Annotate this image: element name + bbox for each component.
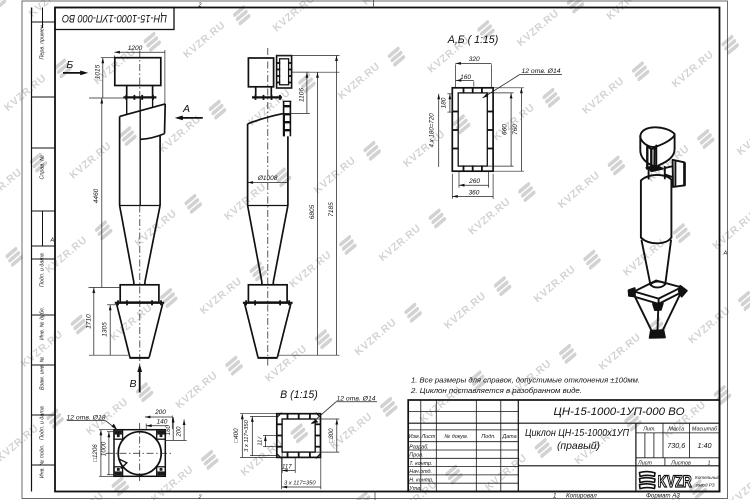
svg-text:Пров.: Пров.: [409, 453, 423, 459]
svg-text:2: 2: [198, 3, 202, 9]
svg-text:Ø1008: Ø1008: [257, 175, 278, 182]
svg-text:1106: 1106: [298, 88, 305, 102]
svg-text:6805: 6805: [309, 204, 316, 219]
svg-text:Лит.: Лит.: [642, 427, 656, 433]
svg-text:12 отв. Ø14: 12 отв. Ø14: [521, 68, 560, 75]
svg-text:Формат А3: Формат А3: [646, 493, 680, 500]
svg-text:160: 160: [166, 425, 172, 436]
svg-text:160: 160: [460, 74, 471, 81]
svg-text:3 х 117=350: 3 х 117=350: [284, 481, 316, 487]
svg-text:730,6: 730,6: [667, 441, 685, 450]
svg-text:200: 200: [177, 426, 183, 438]
svg-text:В: В: [129, 378, 136, 390]
svg-text:260: 260: [468, 178, 480, 185]
svg-text:Перв. примен.: Перв. примен.: [40, 24, 46, 60]
svg-text:Лист: Лист: [637, 460, 652, 466]
svg-text:Масса: Масса: [668, 427, 684, 433]
svg-text:1000: 1000: [100, 441, 107, 456]
svg-text:Т. контр.: Т. контр.: [409, 461, 432, 467]
svg-text:□1206: □1206: [92, 444, 99, 462]
svg-text:Разраб.: Разраб.: [409, 444, 429, 450]
svg-text:Лист: Лист: [421, 434, 436, 440]
svg-text:А: А: [182, 103, 190, 115]
svg-text:760: 760: [512, 124, 519, 135]
svg-text:А,Б ( 1:15): А,Б ( 1:15): [447, 34, 498, 46]
svg-text:А: А: [723, 251, 728, 257]
svg-text:завод РЗ: завод РЗ: [695, 483, 715, 488]
svg-text:Изм.: Изм.: [409, 434, 421, 440]
svg-text:Взам. инв. №: Взам. инв. №: [40, 356, 46, 390]
svg-text:Инв. № дубл.: Инв. № дубл.: [40, 307, 46, 340]
svg-text:2. Циклон поставляется в разоб: 2. Циклон поставляется в разобранном вид…: [410, 386, 582, 395]
svg-text:7185: 7185: [328, 202, 335, 217]
svg-text:Листов: Листов: [670, 460, 691, 466]
svg-text:1710: 1710: [85, 314, 92, 329]
svg-text:Нач.отд.: Нач.отд.: [409, 469, 432, 475]
svg-text:Циклон ЦН-15-1000х1УП: Циклон ЦН-15-1000х1УП: [525, 428, 629, 439]
svg-text:№ докум.: № докум.: [444, 434, 468, 440]
svg-text:660: 660: [502, 124, 509, 135]
svg-text:KVZR: KVZR: [658, 473, 692, 491]
svg-text:Утв.: Утв.: [408, 486, 421, 492]
svg-text:12 отв. Ø14: 12 отв. Ø14: [336, 395, 375, 402]
svg-text:320: 320: [469, 56, 480, 63]
svg-text:□300: □300: [328, 428, 335, 443]
svg-text:□400: □400: [233, 428, 240, 443]
svg-text:Б: Б: [66, 59, 73, 71]
svg-text:117: 117: [282, 464, 292, 470]
svg-text:1200: 1200: [128, 45, 143, 52]
svg-text:1. Все размеры для справок, до: 1. Все размеры для справок, допустимые о…: [411, 376, 640, 385]
svg-text:200: 200: [154, 409, 166, 416]
svg-text:Справ. №: Справ. №: [40, 155, 46, 180]
svg-text:1015: 1015: [94, 64, 101, 79]
svg-text:Дата: Дата: [501, 434, 516, 440]
svg-text:3 х 117=350: 3 х 117=350: [244, 419, 250, 451]
svg-text:Копировал: Копировал: [566, 493, 597, 500]
svg-text:Подп.: Подп.: [481, 434, 495, 440]
svg-text:Н. контр.: Н. контр.: [409, 478, 433, 484]
svg-text:180: 180: [440, 97, 447, 108]
svg-text:Масштаб: Масштаб: [692, 427, 718, 433]
svg-text:2: 2: [198, 495, 202, 500]
svg-text:4460: 4460: [93, 188, 100, 203]
svg-text:1: 1: [553, 493, 556, 500]
svg-text:(правый): (правый): [557, 441, 600, 452]
svg-text:1: 1: [708, 460, 711, 466]
svg-text:Инв. № подл.: Инв. № подл.: [40, 445, 46, 478]
svg-text:А: А: [50, 238, 55, 244]
svg-text:140: 140: [157, 418, 168, 425]
svg-text:117: 117: [258, 436, 264, 446]
svg-text:4 х 180=720: 4 х 180=720: [428, 113, 435, 148]
svg-text:Подп. и дата: Подп. и дата: [40, 253, 46, 287]
svg-text:1:40: 1:40: [698, 441, 712, 450]
svg-text:ЦН-15-1000-1УП-000 ВО: ЦН-15-1000-1УП-000 ВО: [62, 12, 167, 24]
svg-text:ЦН-15-1000-1УП-000 ВО: ЦН-15-1000-1УП-000 ВО: [554, 406, 685, 418]
svg-text:Подп. и дата: Подп. и дата: [40, 406, 46, 440]
svg-text:360: 360: [469, 190, 480, 197]
svg-text:1305: 1305: [102, 322, 109, 337]
svg-text:В (1:15): В (1:15): [280, 389, 318, 401]
svg-text:Котельный: Котельный: [695, 474, 720, 480]
